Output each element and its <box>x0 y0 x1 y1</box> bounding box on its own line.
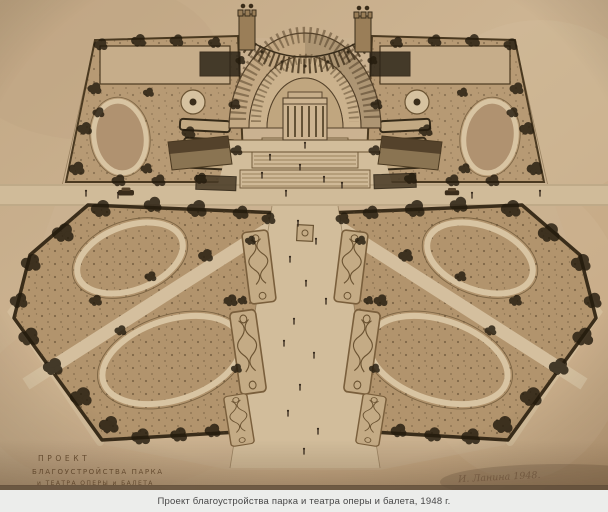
photo-vignette <box>0 0 608 490</box>
archival-photograph: ПРОЕКТ БЛАГОУСТРОЙСТВА ПАРКА и ТЕАТРА ОП… <box>0 0 608 490</box>
photo-caption-bar: Проект благоустройства парка и театра оп… <box>0 490 608 512</box>
archive-page: ПРОЕКТ БЛАГОУСТРОЙСТВА ПАРКА и ТЕАТРА ОП… <box>0 0 608 512</box>
photo-caption: Проект благоустройства парка и театра оп… <box>157 496 450 507</box>
